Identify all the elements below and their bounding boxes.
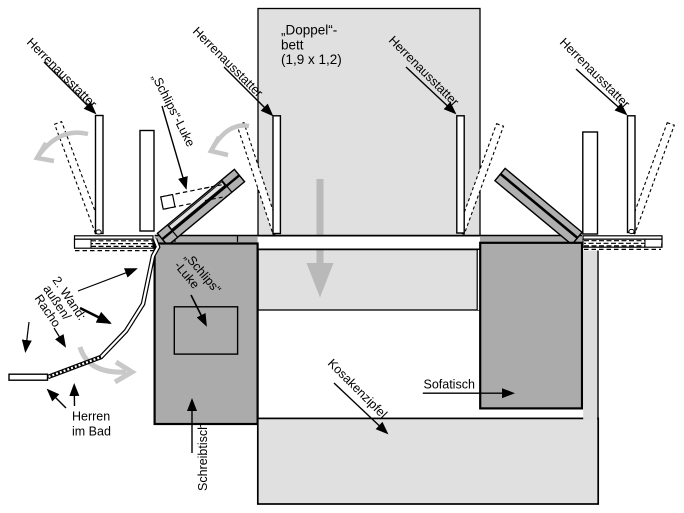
svg-text:Schreibtisch: Schreibtisch <box>196 423 210 491</box>
svg-text:bett: bett <box>281 38 304 53</box>
svg-text:Herren: Herren <box>72 410 110 424</box>
svg-text:im Bad: im Bad <box>72 425 111 439</box>
svg-text:(1,9 x 1,2): (1,9 x 1,2) <box>281 52 342 67</box>
svg-text:Sofatisch: Sofatisch <box>424 378 475 392</box>
svg-text:„Doppel“-: „Doppel“- <box>281 23 337 38</box>
